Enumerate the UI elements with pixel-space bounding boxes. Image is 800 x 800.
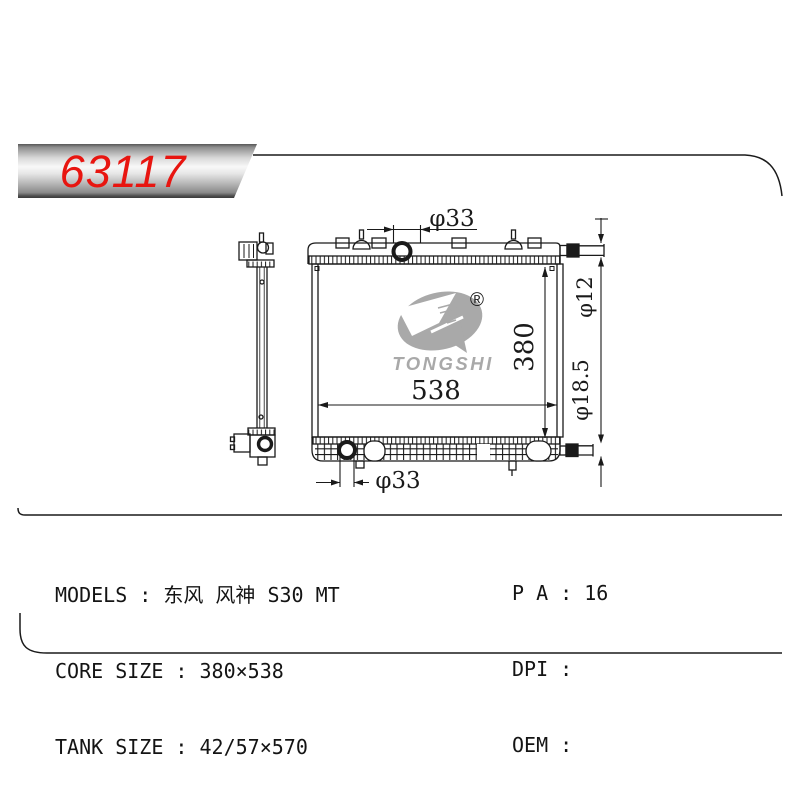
dim-bottom-outlet-label: φ33 (375, 468, 420, 494)
radiator-side-view (231, 233, 276, 465)
spec-oem: OEM : (512, 732, 608, 760)
spec-pa: P A : 16 (512, 580, 608, 608)
dim-core-height: 380 (510, 267, 548, 438)
radiator-top-tank (308, 230, 560, 264)
registered-mark: ® (470, 290, 484, 311)
spec-table-right: P A : 16 DPI : OEM : NISSENS: (512, 532, 608, 800)
frame-top-line (253, 155, 782, 196)
radiator-bottom-tank (312, 437, 560, 476)
catalog-page: 63117 (0, 0, 800, 800)
dim-core-width-label: 538 (411, 376, 461, 406)
dim-top-inlet-label: φ33 (429, 206, 474, 232)
mounting-pin (505, 230, 522, 249)
spec-tank-size: TANK SIZE : 42/57×570 (55, 734, 340, 762)
spec-models: MODELS : 东风 风神 S30 MT (55, 582, 340, 610)
logo-wordmark: TONGSHI (392, 353, 493, 374)
brand-logo: ® TONGSHI (391, 283, 493, 374)
dim-bottom-pipe-label: φ18.5 (569, 359, 593, 420)
bottom-outlet-pipe (560, 444, 593, 457)
drain-outlet (339, 442, 355, 458)
spec-dpi: DPI : (512, 656, 608, 684)
top-outlet-pipe (560, 244, 604, 257)
spec-table-left: MODELS : 东风 风神 S30 MT CORE SIZE : 380×53… (55, 534, 340, 800)
spec-core-size: CORE SIZE : 380×538 (55, 658, 340, 686)
dim-core-height-label: 380 (510, 322, 540, 372)
frame-separator-line (18, 508, 782, 515)
mounting-pin (353, 230, 370, 249)
dim-core-width: 538 (318, 376, 557, 408)
dim-top-pipe-label: φ12 (573, 276, 597, 317)
